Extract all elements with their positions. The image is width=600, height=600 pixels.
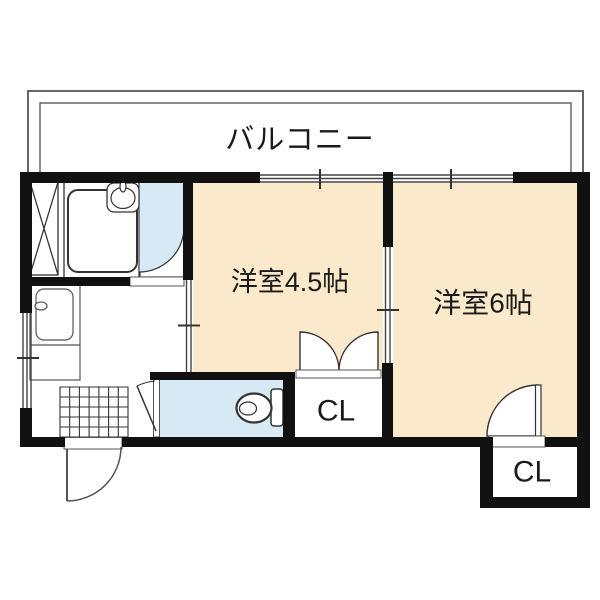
closet2-label: CL: [513, 456, 551, 489]
room-6-label: 洋室6帖: [433, 288, 533, 319]
wall-room-divider-upper: [383, 177, 393, 247]
floor-plan-page: バルコニー 洋室4.5帖 洋室6帖 CL CL: [0, 0, 600, 600]
wall-bottom-2: [122, 437, 490, 447]
wall-bottom-1: [20, 437, 65, 447]
room6-doorway-lintel: [489, 436, 545, 447]
wall-left-upper: [20, 172, 32, 313]
wall-closet2-bottom: [480, 497, 590, 508]
room-4-5-label: 洋室4.5帖: [231, 267, 350, 297]
closet1-label: CL: [317, 395, 355, 428]
room6-door-leaf: [536, 385, 542, 436]
kitchen-counter: [30, 283, 80, 380]
wall-hall-divider-upper: [183, 180, 193, 280]
floor-plan: バルコニー 洋室4.5帖 洋室6帖 CL CL: [0, 0, 600, 600]
balcony-label: バルコニー: [225, 124, 374, 156]
washbasin-icon: [107, 181, 139, 212]
kitchen-sink-icon: [36, 289, 73, 340]
pipe-shaft-icon: [30, 182, 58, 275]
kitchen-tap-icon: [35, 302, 47, 310]
wall-room-divider-lower: [382, 363, 393, 447]
washroom-doorway-lintel: [130, 277, 184, 286]
wall-toilet-top: [150, 372, 295, 380]
wall-bottom-3: [545, 437, 590, 447]
entrance-doorway-lintel: [64, 438, 122, 450]
wall-top-left: [20, 172, 260, 183]
wall-toilet-right: [283, 372, 295, 447]
wall-right: [577, 172, 590, 508]
closet1-doorway-lintel: [296, 370, 381, 378]
wall-bath-bottom: [20, 277, 130, 286]
